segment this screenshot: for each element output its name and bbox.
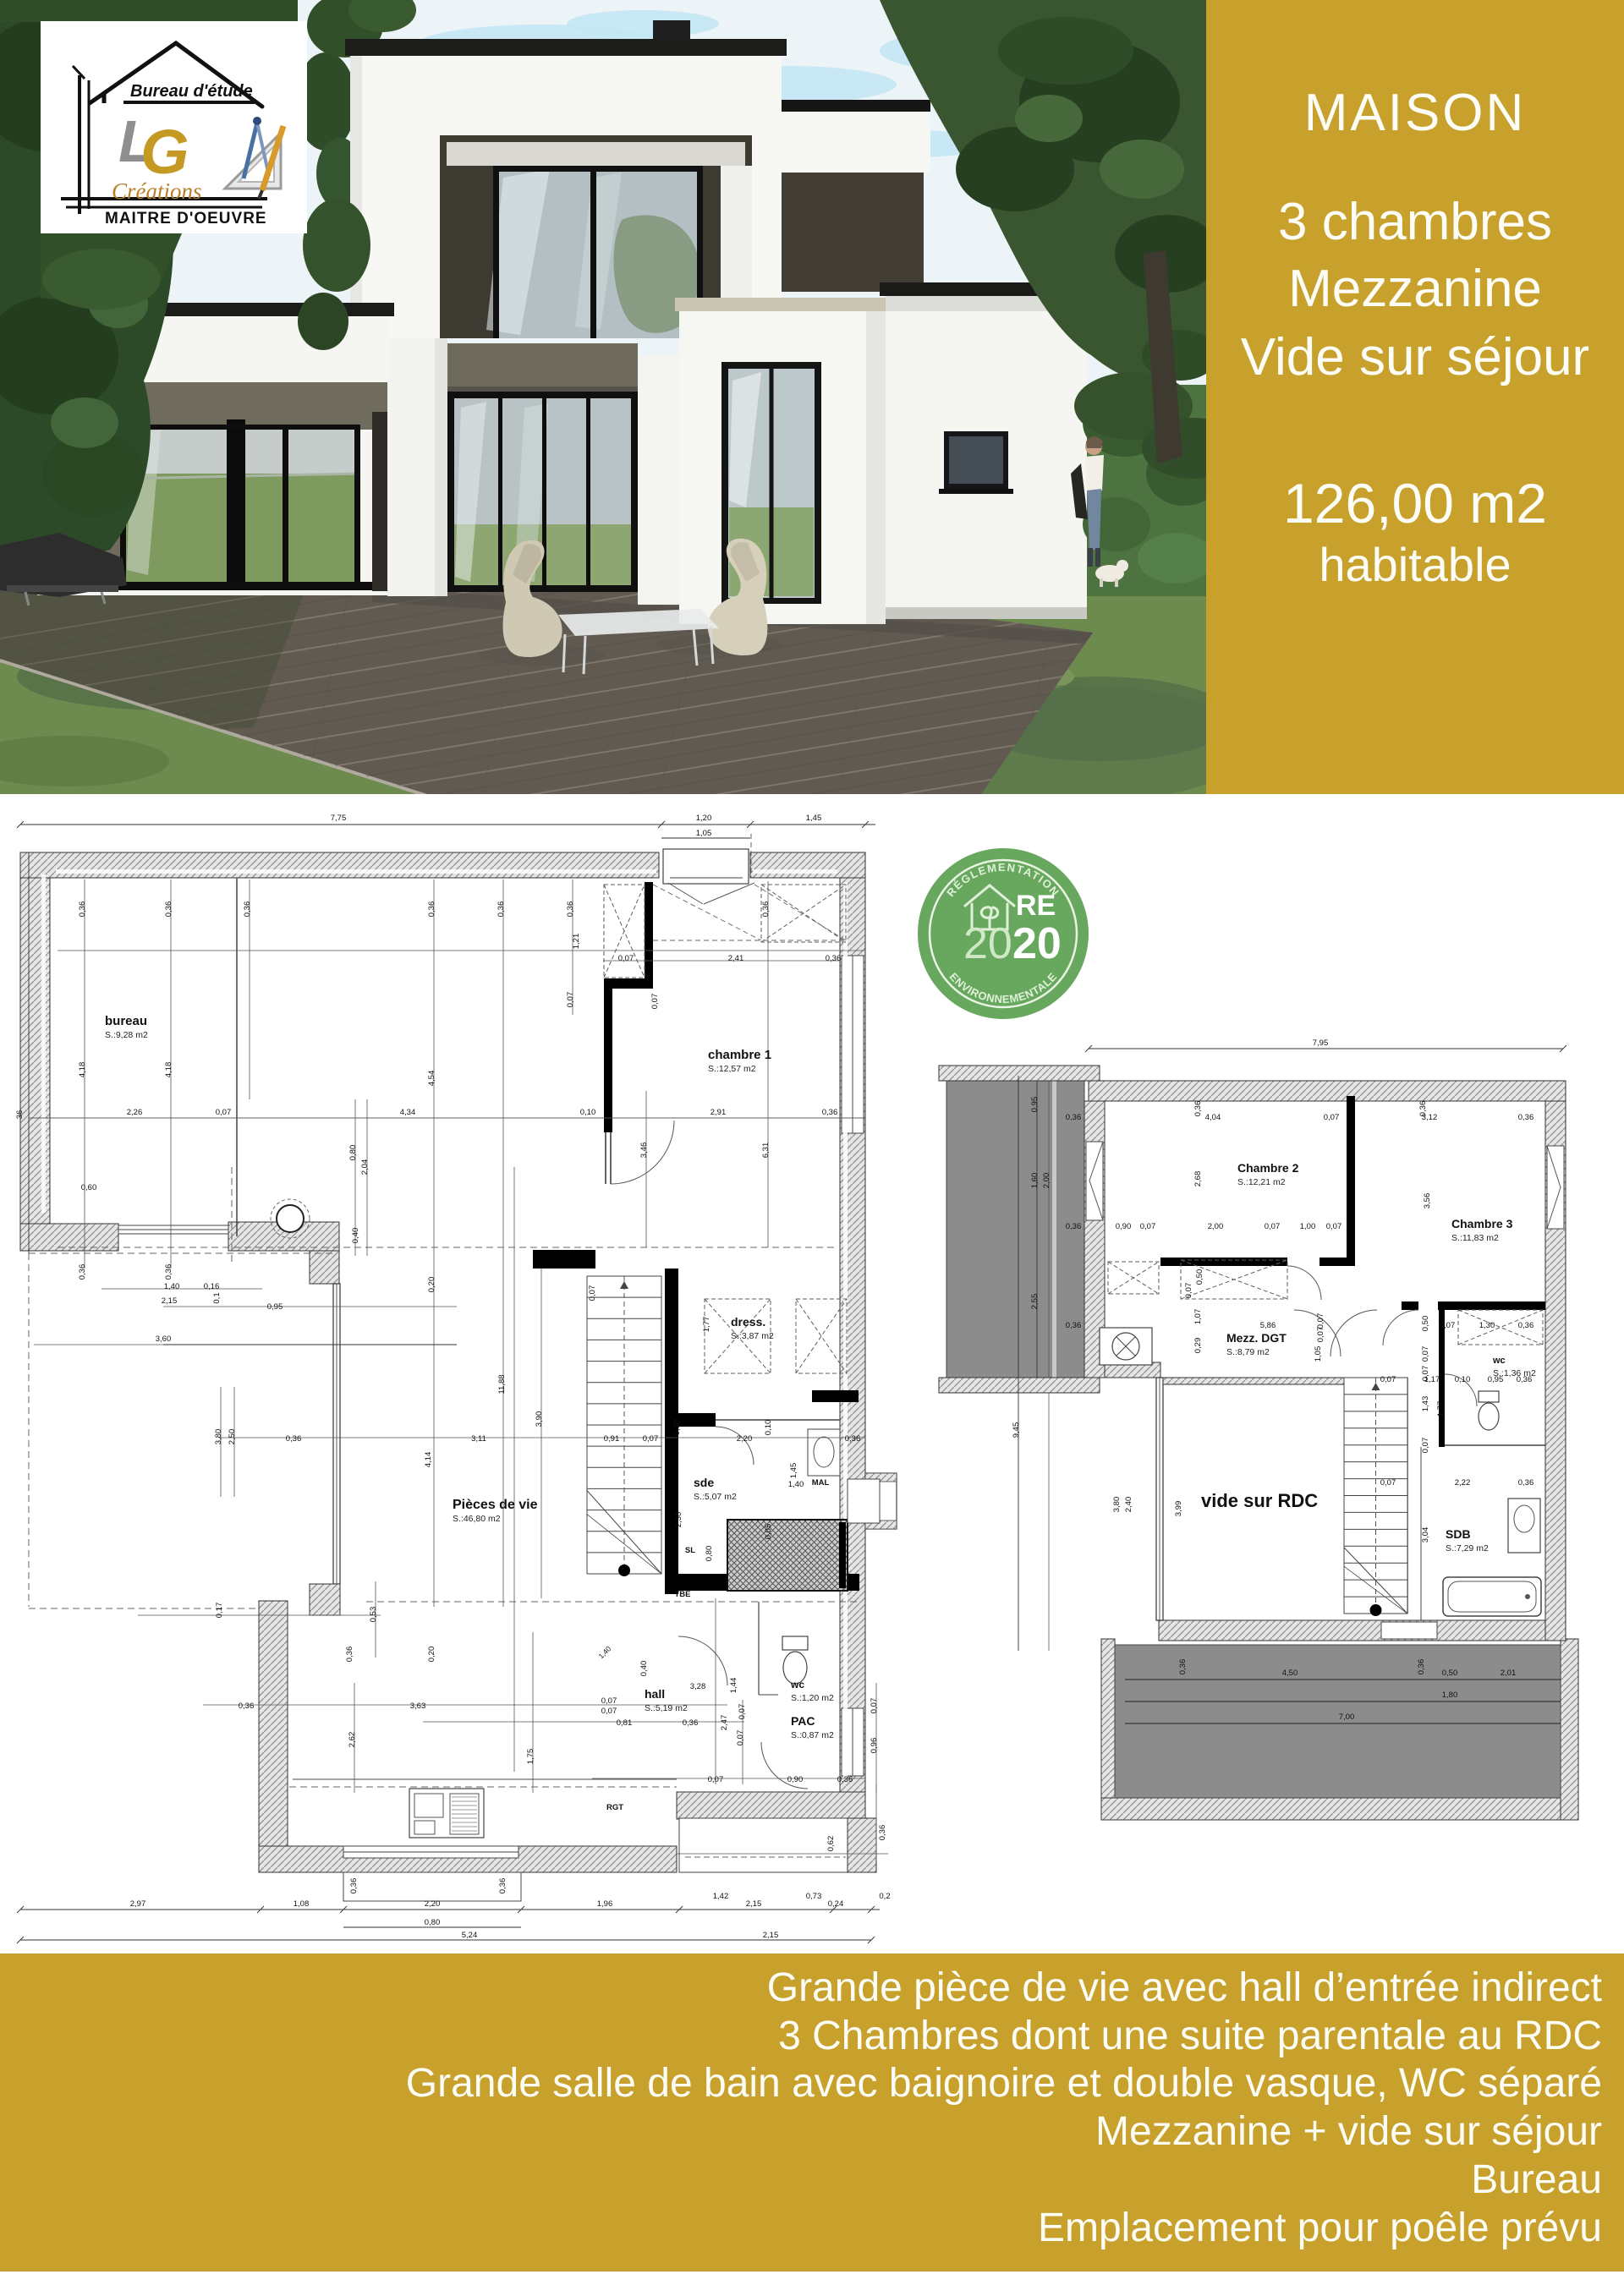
svg-text:0,36: 0,36 [1178, 1659, 1188, 1675]
svg-text:MAL: MAL [812, 1478, 830, 1488]
svg-text:0,10: 0,10 [672, 1420, 682, 1436]
svg-text:2,68: 2,68 [1193, 1171, 1203, 1187]
svg-text:0,36: 0,36 [1518, 1478, 1534, 1488]
svg-text:3,99: 3,99 [1174, 1501, 1183, 1517]
svg-text:0,10: 0,10 [580, 1108, 596, 1117]
svg-text:S.:12,57 m2: S.:12,57 m2 [708, 1064, 756, 1074]
svg-text:3,90: 3,90 [535, 1411, 544, 1427]
svg-text:vide sur RDC: vide sur RDC [1201, 1490, 1318, 1511]
svg-text:0,36: 0,36 [837, 1775, 853, 1784]
svg-text:0,36: 0,36 [164, 901, 173, 918]
svg-text:S.:1,36 m2: S.:1,36 m2 [1493, 1368, 1536, 1378]
svg-text:1,21: 1,21 [572, 934, 581, 950]
svg-text:sde: sde [694, 1476, 714, 1489]
svg-text:0,36: 0,36 [1518, 1321, 1534, 1330]
svg-text:2,00: 2,00 [1042, 1173, 1051, 1189]
svg-text:2,40: 2,40 [1124, 1497, 1133, 1513]
svg-text:2,04: 2,04 [360, 1159, 370, 1175]
svg-text:0,36: 0,36 [239, 1701, 255, 1711]
svg-text:4,34: 4,34 [400, 1108, 416, 1117]
svg-text:0,07: 0,07 [1380, 1375, 1396, 1384]
svg-text:0,07: 0,07 [1421, 1438, 1430, 1454]
svg-text:0,36: 0,36 [1193, 1101, 1203, 1117]
svg-text:0,80: 0,80 [705, 1546, 714, 1562]
svg-text:1,45: 1,45 [789, 1463, 798, 1479]
svg-text:0,07: 0,07 [1421, 1346, 1430, 1362]
svg-text:0,24: 0,24 [828, 1899, 844, 1909]
svg-text:0,07: 0,07 [870, 1698, 879, 1714]
svg-text:6,31: 6,31 [761, 1143, 771, 1159]
svg-text:wc: wc [790, 1679, 804, 1690]
svg-text:36: 36 [15, 1110, 25, 1120]
svg-text:3,04: 3,04 [1421, 1527, 1430, 1543]
svg-text:0,17: 0,17 [215, 1603, 224, 1619]
svg-text:2,55: 2,55 [1030, 1294, 1040, 1310]
svg-text:1,05: 1,05 [1314, 1346, 1323, 1362]
svg-text:1,30: 1,30 [1479, 1321, 1495, 1330]
svg-text:0,80: 0,80 [425, 1918, 441, 1927]
svg-text:0,07: 0,07 [1326, 1222, 1342, 1231]
svg-text:Chambre 2: Chambre 2 [1237, 1161, 1299, 1175]
svg-text:0,36: 0,36 [78, 901, 87, 918]
svg-text:1,40: 1,40 [164, 1282, 180, 1291]
svg-text:0,81: 0,81 [617, 1718, 633, 1728]
svg-text:1,42: 1,42 [713, 1892, 729, 1901]
svg-text:2,15: 2,15 [763, 1931, 779, 1940]
svg-text:7,75: 7,75 [331, 814, 347, 823]
svg-text:1,17: 1,17 [1424, 1375, 1440, 1384]
svg-text:1,60: 1,60 [1030, 1173, 1040, 1189]
svg-text:0,20: 0,20 [427, 1647, 436, 1663]
svg-text:0,36: 0,36 [286, 1434, 302, 1444]
svg-text:0,50: 0,50 [1442, 1669, 1458, 1678]
svg-text:0,36: 0,36 [845, 1434, 861, 1444]
svg-text:1,77: 1,77 [702, 1317, 711, 1333]
svg-text:0,07: 0,07 [1380, 1478, 1396, 1488]
svg-text:0,2: 0,2 [879, 1892, 890, 1901]
svg-text:0,07: 0,07 [1324, 1113, 1340, 1122]
svg-text:S.:46,80 m2: S.:46,80 m2 [453, 1514, 501, 1524]
svg-text:0,40: 0,40 [639, 1661, 649, 1677]
svg-text:S.:7,29 m2: S.:7,29 m2 [1446, 1543, 1489, 1553]
svg-text:4,18: 4,18 [164, 1062, 173, 1078]
svg-text:0,36: 0,36 [683, 1718, 699, 1728]
svg-text:PAC: PAC [791, 1714, 815, 1728]
svg-text:7,00: 7,00 [1339, 1712, 1355, 1722]
svg-text:2,62: 2,62 [348, 1732, 357, 1748]
svg-text:TBE: TBE [675, 1590, 691, 1599]
svg-text:S.:12,21 m2: S.:12,21 m2 [1237, 1177, 1286, 1187]
svg-text:4,14: 4,14 [424, 1452, 433, 1468]
svg-text:0,05: 0,05 [764, 1524, 773, 1540]
svg-text:bureau: bureau [105, 1014, 147, 1028]
svg-text:9,45: 9,45 [1012, 1422, 1021, 1438]
svg-text:RE: RE [1016, 890, 1056, 922]
svg-text:0,73: 0,73 [806, 1892, 822, 1901]
svg-text:1,05: 1,05 [696, 829, 712, 838]
svg-text:1,20: 1,20 [696, 814, 712, 823]
svg-text:0,90: 0,90 [787, 1775, 804, 1784]
svg-text:2,41: 2,41 [728, 954, 744, 963]
svg-text:0,36: 0,36 [349, 1878, 359, 1894]
svg-text:S.:5,19 m2: S.:5,19 m2 [645, 1703, 688, 1713]
svg-text:1,40: 1,40 [788, 1480, 804, 1489]
svg-text:4,18: 4,18 [78, 1062, 87, 1078]
svg-text:0,07: 0,07 [650, 994, 660, 1010]
svg-text:0,36: 0,36 [497, 901, 506, 918]
svg-text:4,50: 4,50 [1282, 1669, 1298, 1678]
svg-text:0,07: 0,07 [601, 1707, 617, 1716]
svg-text:0,36: 0,36 [498, 1878, 507, 1894]
svg-text:3,80: 3,80 [214, 1429, 223, 1445]
svg-text:2,15: 2,15 [746, 1899, 762, 1909]
svg-text:0,07: 0,07 [601, 1696, 617, 1706]
svg-text:0,53: 0,53 [369, 1607, 378, 1623]
svg-text:0,29: 0,29 [1193, 1338, 1203, 1354]
svg-text:0,36: 0,36 [566, 901, 575, 918]
svg-text:0,36: 0,36 [1066, 1113, 1082, 1122]
svg-text:2,50: 2,50 [228, 1429, 237, 1445]
svg-text:2,30: 2,30 [674, 1512, 683, 1528]
svg-text:0,07: 0,07 [618, 954, 634, 963]
svg-text:0,36: 0,36 [1066, 1222, 1082, 1231]
svg-text:0,40: 0,40 [351, 1228, 360, 1244]
svg-text:SDB: SDB [1446, 1527, 1471, 1541]
svg-text:20: 20 [963, 919, 1012, 968]
svg-text:0,07: 0,07 [1316, 1313, 1325, 1329]
svg-text:0,07: 0,07 [1184, 1283, 1193, 1299]
svg-text:0,96: 0,96 [870, 1738, 879, 1754]
svg-text:0,07: 0,07 [736, 1730, 745, 1746]
svg-text:20: 20 [1012, 919, 1062, 968]
svg-text:1,08: 1,08 [294, 1899, 310, 1909]
svg-text:0,36: 0,36 [345, 1647, 354, 1663]
svg-text:0,36: 0,36 [761, 901, 771, 918]
svg-text:3,80: 3,80 [1112, 1497, 1122, 1513]
svg-text:0,62: 0,62 [826, 1836, 836, 1852]
svg-text:wc: wc [1492, 1356, 1506, 1366]
svg-text:S.:5,07 m2: S.:5,07 m2 [694, 1492, 737, 1502]
svg-text:0,36: 0,36 [1066, 1321, 1082, 1330]
svg-text:dress.: dress. [731, 1315, 765, 1329]
svg-text:0,20: 0,20 [427, 1277, 436, 1293]
svg-text:5,24: 5,24 [462, 1931, 478, 1940]
svg-text:0,36: 0,36 [822, 1108, 838, 1117]
svg-text:1,40: 1,40 [596, 1644, 612, 1660]
svg-text:0,07: 0,07 [708, 1775, 724, 1784]
svg-text:2,20: 2,20 [425, 1899, 441, 1909]
svg-text:0,36: 0,36 [1518, 1113, 1534, 1122]
svg-text:1,44: 1,44 [729, 1678, 738, 1694]
svg-text:SL: SL [685, 1546, 695, 1555]
svg-text:0,16: 0,16 [204, 1282, 220, 1291]
svg-text:0,07: 0,07 [738, 1704, 747, 1720]
svg-text:1,43: 1,43 [1421, 1396, 1430, 1412]
svg-text:2,15: 2,15 [162, 1296, 178, 1306]
svg-text:0,07: 0,07 [588, 1285, 597, 1301]
svg-text:3,11: 3,11 [471, 1434, 486, 1444]
svg-text:1,00: 1,00 [1300, 1222, 1316, 1231]
svg-text:Pièces de vie: Pièces de vie [453, 1498, 538, 1512]
svg-text:7,95: 7,95 [1313, 1038, 1329, 1048]
svg-text:0,1: 0,1 [212, 1292, 222, 1303]
svg-text:Chambre 3: Chambre 3 [1451, 1217, 1513, 1230]
svg-text:0,07: 0,07 [1440, 1321, 1456, 1330]
svg-text:2,00: 2,00 [1208, 1222, 1224, 1231]
svg-text:4,54: 4,54 [427, 1071, 436, 1087]
svg-text:0,10: 0,10 [764, 1420, 773, 1436]
svg-text:3,46: 3,46 [639, 1143, 649, 1159]
svg-text:0,07: 0,07 [566, 992, 575, 1008]
svg-text:2,47: 2,47 [720, 1715, 729, 1731]
svg-text:S.:9,28 m2: S.:9,28 m2 [105, 1030, 148, 1040]
svg-text:0,36: 0,36 [243, 901, 252, 918]
svg-text:2,91: 2,91 [710, 1108, 727, 1117]
svg-text:0,36: 0,36 [1418, 1101, 1428, 1117]
svg-text:0,07: 0,07 [1316, 1327, 1325, 1343]
svg-text:1,77: 1,77 [1436, 1401, 1446, 1417]
svg-text:1,07: 1,07 [1193, 1309, 1203, 1325]
svg-text:3,63: 3,63 [410, 1701, 426, 1711]
svg-text:0,36: 0,36 [826, 954, 842, 963]
svg-text:2,26: 2,26 [127, 1108, 143, 1117]
svg-text:0,80: 0,80 [348, 1145, 358, 1161]
svg-text:0,07: 0,07 [643, 1434, 659, 1444]
svg-text:Mezz. DGT: Mezz. DGT [1226, 1331, 1287, 1345]
svg-text:1,96: 1,96 [597, 1899, 613, 1909]
svg-text:0,90: 0,90 [1116, 1222, 1132, 1231]
svg-text:2,01: 2,01 [1501, 1669, 1517, 1678]
svg-text:0,36: 0,36 [78, 1264, 87, 1280]
svg-text:4,04: 4,04 [1205, 1113, 1221, 1122]
svg-text:3,60: 3,60 [156, 1334, 172, 1344]
svg-text:0,91: 0,91 [604, 1434, 620, 1444]
svg-text:S.:0,87 m2: S.:0,87 m2 [791, 1730, 834, 1740]
svg-text:0,60: 0,60 [81, 1183, 97, 1192]
svg-text:RGT: RGT [606, 1803, 623, 1812]
svg-text:S.:11,83 m2: S.:11,83 m2 [1451, 1233, 1499, 1243]
svg-text:0,36: 0,36 [164, 1264, 173, 1280]
svg-text:0,36: 0,36 [1417, 1659, 1426, 1675]
svg-text:2,22: 2,22 [1455, 1478, 1471, 1488]
svg-text:5,86: 5,86 [1260, 1321, 1276, 1330]
svg-text:0,10: 0,10 [1455, 1375, 1471, 1384]
svg-text:hall: hall [645, 1687, 665, 1701]
svg-text:0,95: 0,95 [1030, 1097, 1040, 1113]
svg-text:2,20: 2,20 [737, 1434, 753, 1444]
svg-text:1,80: 1,80 [1442, 1690, 1458, 1700]
svg-text:S.:1,20 m2: S.:1,20 m2 [791, 1693, 834, 1703]
svg-text:0,95: 0,95 [267, 1302, 283, 1312]
svg-text:1,75: 1,75 [526, 1749, 535, 1765]
svg-text:chambre 1: chambre 1 [708, 1048, 771, 1062]
svg-text:0,36: 0,36 [878, 1825, 887, 1841]
svg-text:0,07: 0,07 [1140, 1222, 1156, 1231]
svg-text:S.:8,79 m2: S.:8,79 m2 [1226, 1347, 1270, 1357]
svg-text:0,50: 0,50 [1421, 1316, 1430, 1332]
svg-text:0,50: 0,50 [1195, 1269, 1204, 1285]
svg-text:S.:3,87 m2: S.:3,87 m2 [731, 1331, 774, 1341]
svg-text:0,07: 0,07 [216, 1108, 232, 1117]
svg-text:0,07: 0,07 [1265, 1222, 1281, 1231]
svg-text:1,45: 1,45 [806, 814, 822, 823]
svg-text:11,88: 11,88 [497, 1374, 507, 1394]
svg-text:0,36: 0,36 [427, 901, 436, 918]
svg-text:3,56: 3,56 [1423, 1193, 1432, 1209]
svg-text:2,97: 2,97 [130, 1899, 146, 1909]
svg-text:3,28: 3,28 [690, 1682, 706, 1691]
